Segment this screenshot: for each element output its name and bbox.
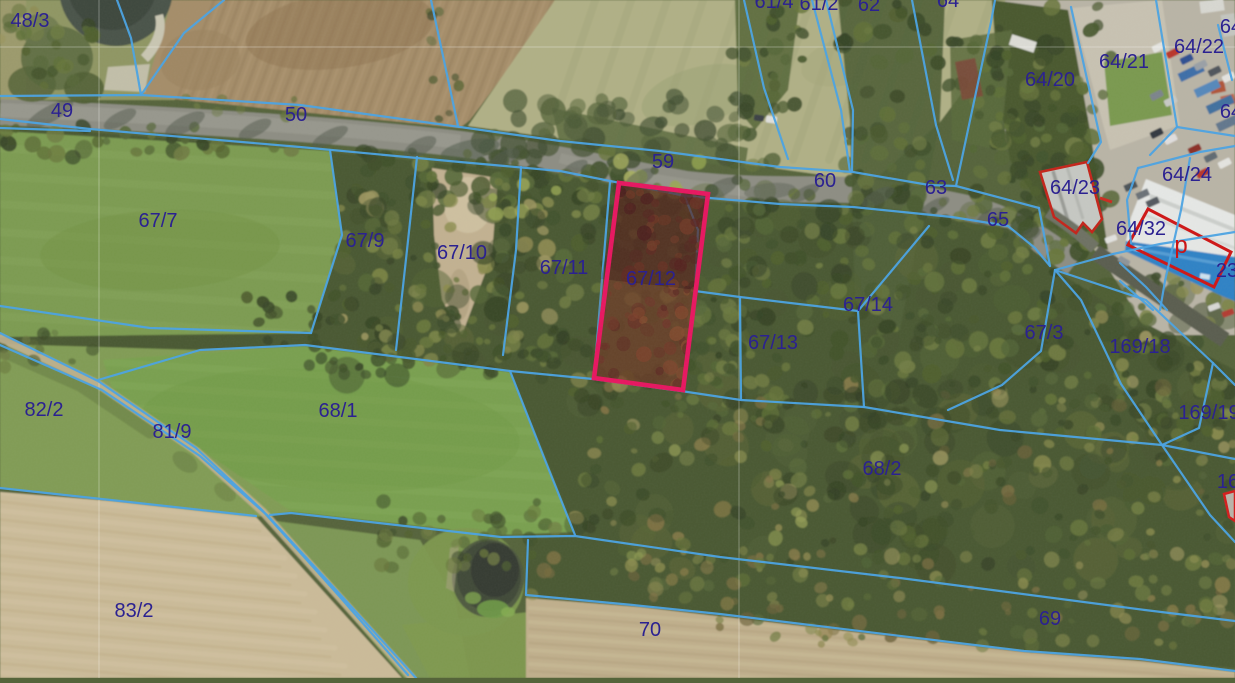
svg-text:61/4: 61/4 <box>755 0 794 13</box>
svg-text:67/14: 67/14 <box>843 294 893 316</box>
svg-text:70: 70 <box>639 619 661 641</box>
svg-text:67/9: 67/9 <box>346 230 385 252</box>
svg-text:p: p <box>1174 232 1187 259</box>
svg-text:49: 49 <box>51 100 73 122</box>
svg-text:63: 63 <box>925 177 947 199</box>
svg-text:23: 23 <box>1216 260 1235 282</box>
svg-text:64: 64 <box>937 0 959 12</box>
svg-text:81/9: 81/9 <box>153 421 192 443</box>
svg-text:61/2: 61/2 <box>800 0 839 15</box>
svg-text:69: 69 <box>1039 608 1061 630</box>
svg-text:169/18: 169/18 <box>1109 336 1170 358</box>
svg-text:65: 65 <box>987 209 1009 231</box>
svg-text:50: 50 <box>285 104 307 126</box>
svg-text:67/3: 67/3 <box>1025 322 1064 344</box>
svg-text:67/11: 67/11 <box>540 257 589 279</box>
svg-text:82/2: 82/2 <box>25 399 64 421</box>
svg-text:67/10: 67/10 <box>437 242 487 264</box>
svg-text:83/2: 83/2 <box>115 600 154 622</box>
svg-text:59: 59 <box>652 151 674 173</box>
svg-text:64: 64 <box>1220 16 1235 38</box>
svg-text:68/1: 68/1 <box>319 400 358 422</box>
svg-text:67/7: 67/7 <box>139 210 178 232</box>
svg-text:169/19: 169/19 <box>1178 402 1235 424</box>
svg-text:60: 60 <box>814 170 836 192</box>
svg-text:64/21: 64/21 <box>1099 51 1149 73</box>
svg-text:64: 64 <box>1220 101 1235 123</box>
svg-text:16: 16 <box>1217 471 1235 493</box>
svg-text:68/2: 68/2 <box>863 458 902 480</box>
svg-text:64/23: 64/23 <box>1050 177 1100 199</box>
svg-text:64/24: 64/24 <box>1162 164 1212 186</box>
svg-text:62: 62 <box>858 0 880 16</box>
svg-text:48/3: 48/3 <box>11 10 50 32</box>
svg-text:64/20: 64/20 <box>1025 69 1075 91</box>
svg-text:67/13: 67/13 <box>748 332 798 354</box>
svg-text:64/32: 64/32 <box>1116 218 1166 240</box>
svg-text:67/12: 67/12 <box>626 268 676 290</box>
svg-text:64/22: 64/22 <box>1174 36 1224 58</box>
